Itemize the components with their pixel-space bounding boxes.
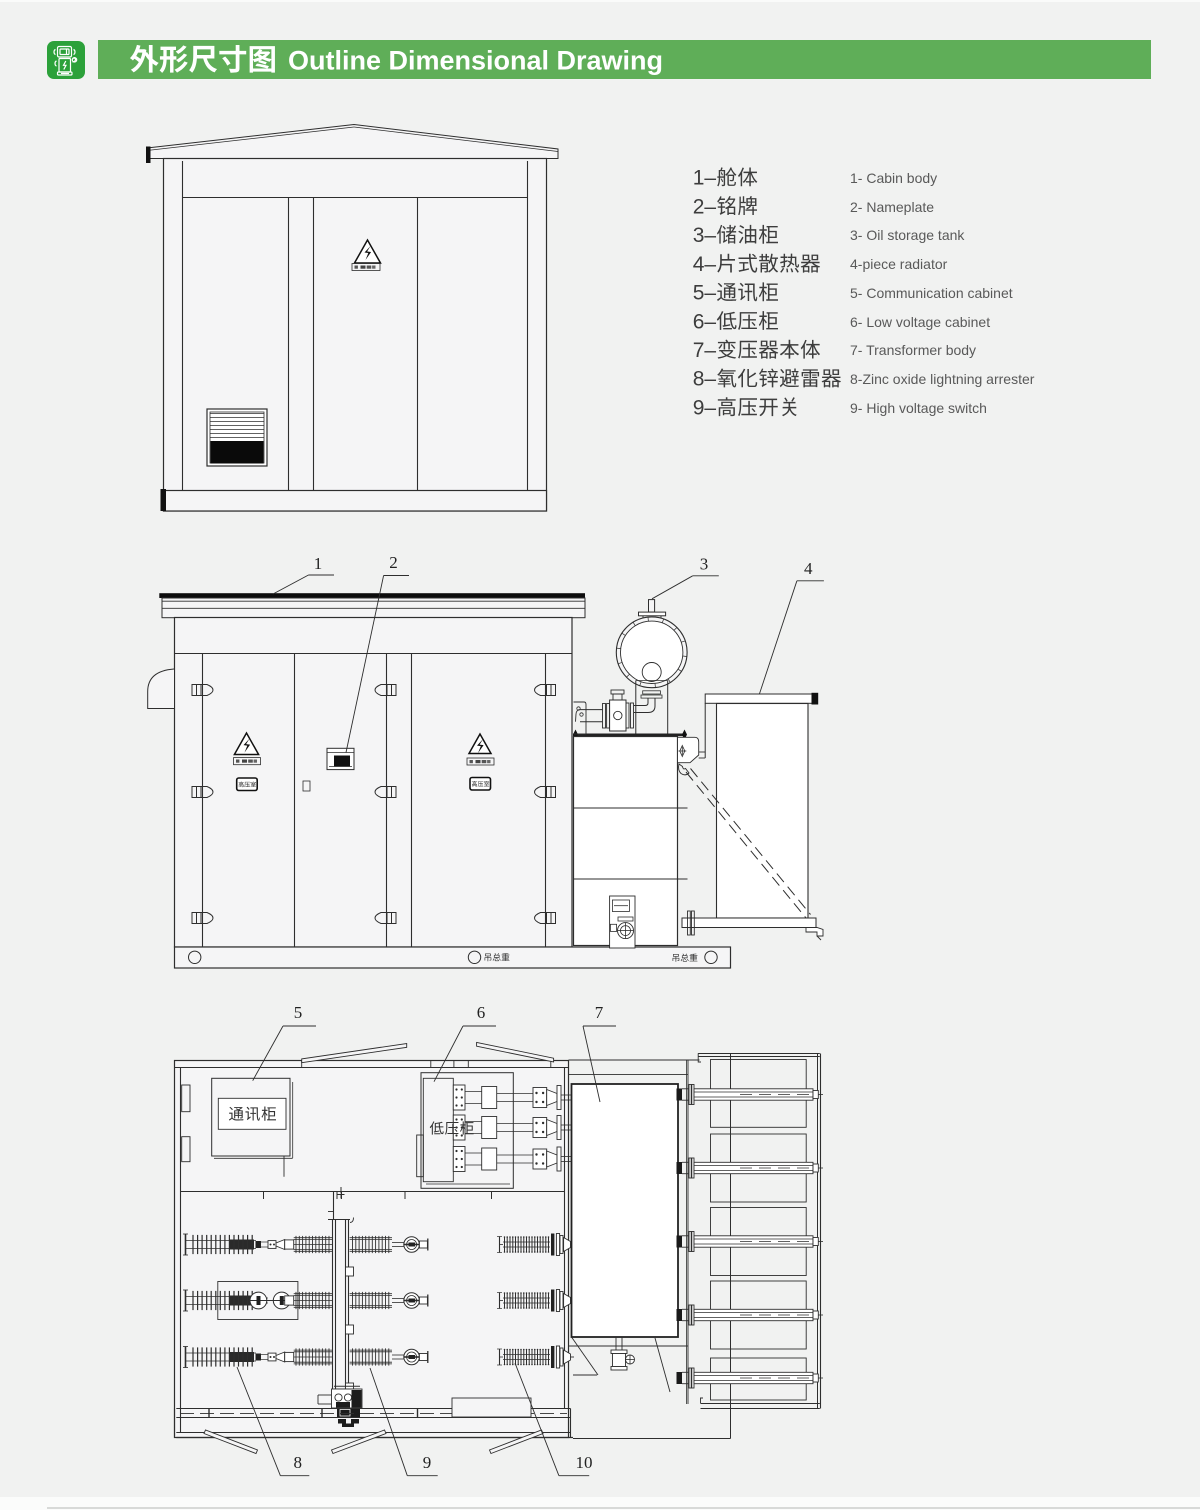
svg-text:3: 3 bbox=[700, 555, 709, 574]
svg-text:1: 1 bbox=[314, 554, 323, 573]
svg-text:2: 2 bbox=[389, 553, 398, 572]
svg-text:5: 5 bbox=[294, 1003, 303, 1022]
svg-text:4: 4 bbox=[804, 559, 813, 578]
svg-text:10: 10 bbox=[576, 1453, 593, 1472]
svg-text:9: 9 bbox=[423, 1453, 432, 1472]
svg-text:6: 6 bbox=[477, 1003, 486, 1022]
svg-text:8: 8 bbox=[293, 1453, 302, 1472]
svg-text:7: 7 bbox=[595, 1003, 604, 1022]
